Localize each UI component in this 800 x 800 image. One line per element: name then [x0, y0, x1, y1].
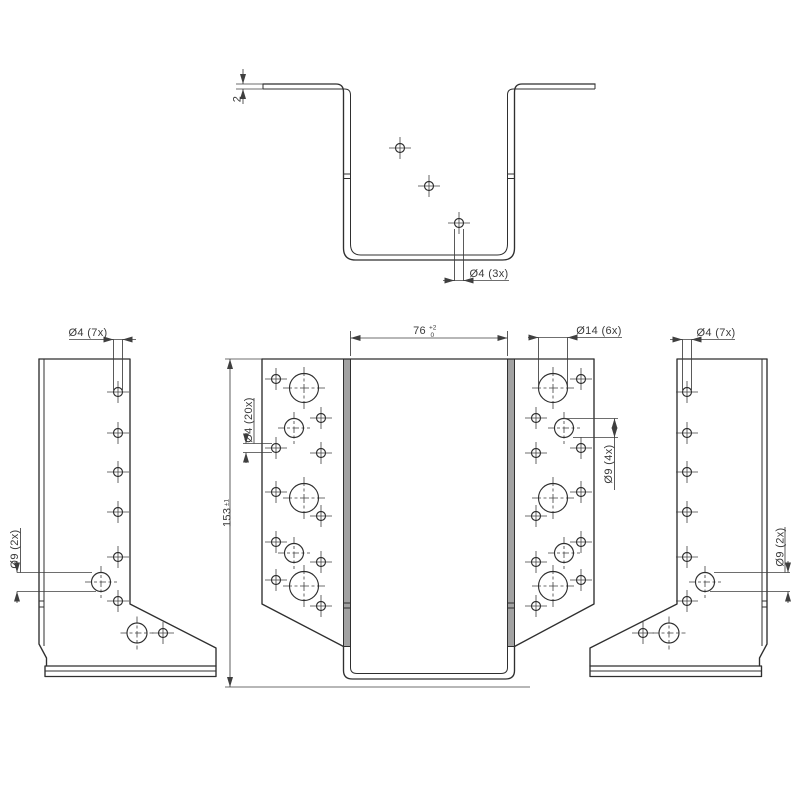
dim-flange-small-holes-label: Ø4 (20x): [243, 397, 255, 443]
dim-width-label: 76: [413, 325, 426, 337]
right-view-back-edge-outer: [760, 359, 768, 666]
technical-drawing: 2 Ø4 (3x) 76 +2 0: [0, 0, 800, 800]
right-view-seam-ticks: [762, 601, 767, 607]
dim-top-holes-label: Ø4 (3x): [469, 268, 508, 280]
left-view-seam-ticks: [39, 601, 44, 607]
left-view-outline: [39, 359, 216, 666]
dim-left-large-holes: Ø9 (2x): [9, 528, 96, 603]
top-view-outer-outline: [263, 84, 595, 260]
front-view-seam-ticks: [344, 603, 515, 608]
dim-flange-mid-holes-label: Ø9 (4x): [603, 444, 615, 483]
front-view: 76 +2 0 Ø14 (6x) Ø4 (20x) Ø9 (4x): [222, 325, 623, 688]
drawing-canvas: 2 Ø4 (3x) 76 +2 0: [0, 0, 800, 800]
dim-width-tol-upper: +2: [429, 325, 437, 332]
dim-right-large-holes: Ø9 (2x): [710, 527, 790, 603]
dim-flange-large-holes-label: Ø14 (6x): [576, 325, 622, 337]
dim-right-side-holes-label: Ø4 (7x): [696, 327, 735, 339]
front-right-flange-holes: [525, 367, 592, 617]
dim-thickness: 2: [232, 69, 264, 104]
leader-lines: [17, 573, 96, 592]
front-bottom-inner: [351, 647, 508, 674]
dim-flange-mid-holes: Ø9 (4x): [564, 419, 618, 491]
dim-left-side-holes-label: Ø4 (7x): [68, 327, 107, 339]
dim-flange-small-holes: Ø4 (20x): [243, 397, 272, 463]
top-view-holes: [389, 137, 470, 234]
leader-lines: [710, 573, 790, 592]
dim-height: 153±1: [222, 359, 531, 687]
left-view-base: [45, 666, 216, 677]
right-view-base: [590, 666, 762, 677]
right-side-view: Ø4 (7x) Ø9 (2x): [590, 327, 790, 677]
extension-lines: [351, 331, 508, 356]
front-bottom-outer: [344, 647, 515, 680]
extension-lines: [236, 84, 263, 89]
top-view-inner-outline: [263, 89, 595, 255]
dim-width-tol-lower: 0: [431, 332, 435, 339]
left-view-back-edge-outer: [39, 359, 47, 666]
dim-right-large-holes-label: Ø9 (2x): [775, 527, 787, 566]
right-view-outline: [590, 359, 767, 666]
dim-width: 76 +2 0: [351, 325, 508, 357]
dim-height-label: 153±1: [222, 499, 234, 527]
left-side-view: Ø4 (7x) Ø9 (2x): [9, 327, 216, 677]
front-left-flange-holes: [265, 367, 332, 617]
top-view: 2 Ø4 (3x): [232, 69, 596, 281]
dim-left-large-holes-label: Ø9 (2x): [9, 529, 21, 568]
dim-thickness-label: 2: [232, 96, 244, 102]
top-view-flange-end-caps: [263, 84, 595, 89]
